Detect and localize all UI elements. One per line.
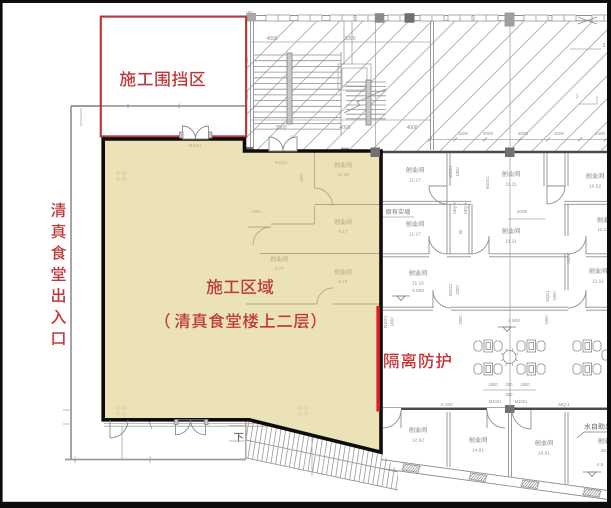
- svg-text:1800: 1800: [458, 315, 463, 325]
- svg-text:4.70: 4.70: [275, 266, 284, 271]
- svg-text:11.17: 11.17: [409, 232, 421, 238]
- svg-text:11.17: 11.17: [409, 178, 421, 184]
- svg-text:50: 50: [458, 229, 463, 234]
- svg-text:1800: 1800: [299, 173, 304, 183]
- svg-text:16.38: 16.38: [337, 172, 349, 177]
- svg-text:11.11: 11.11: [505, 239, 517, 245]
- svg-text:MQ-C: MQ-C: [566, 252, 571, 263]
- svg-text:1500: 1500: [251, 209, 261, 214]
- svg-text:1500: 1500: [458, 131, 469, 136]
- svg-text:2000: 2000: [483, 131, 494, 136]
- svg-text:16.61: 16.61: [538, 451, 550, 457]
- svg-text:3500: 3500: [275, 125, 286, 131]
- svg-text:14.81: 14.81: [472, 448, 484, 454]
- svg-text:2000: 2000: [517, 209, 528, 214]
- svg-text:M1021: M1021: [485, 176, 490, 189]
- svg-text:1: 1: [576, 94, 579, 100]
- svg-text:M1021: M1021: [515, 399, 528, 404]
- svg-text:MQ-5: MQ-5: [463, 202, 468, 214]
- svg-text:4.5: 4.5: [597, 462, 604, 468]
- svg-text:-0.150: -0.150: [439, 402, 452, 407]
- svg-text:12.92: 12.92: [412, 438, 424, 444]
- svg-text:1800: 1800: [455, 285, 460, 295]
- svg-text:3200: 3200: [344, 36, 355, 42]
- svg-text:1400: 1400: [595, 131, 606, 136]
- svg-text:4.500: 4.500: [412, 288, 424, 294]
- svg-text:11.11: 11.11: [505, 182, 517, 188]
- svg-text:1800: 1800: [552, 291, 557, 301]
- svg-text:1500: 1500: [554, 131, 565, 136]
- svg-text:4000: 4000: [266, 36, 277, 42]
- svg-text:4000: 4000: [339, 125, 350, 131]
- svg-text:250: 250: [506, 392, 514, 397]
- svg-text:1800: 1800: [455, 167, 460, 177]
- svg-text:150: 150: [246, 10, 254, 15]
- svg-text:M1021: M1021: [383, 315, 388, 328]
- svg-text:1800: 1800: [488, 382, 498, 387]
- svg-text:3: 3: [603, 43, 606, 49]
- svg-text:11.11: 11.11: [592, 279, 604, 285]
- svg-text:4000: 4000: [406, 125, 417, 131]
- svg-text:26.: 26.: [601, 448, 608, 454]
- svg-text:16.52: 16.52: [589, 184, 601, 190]
- svg-text:9.18: 9.18: [339, 279, 348, 284]
- svg-text:MQ-1: MQ-1: [558, 402, 570, 407]
- svg-text:11.16: 11.16: [412, 281, 424, 287]
- svg-text:1800: 1800: [520, 382, 530, 387]
- svg-text:4.500: 4.500: [508, 318, 520, 324]
- svg-text:M1021: M1021: [489, 399, 502, 404]
- svg-text:M1021: M1021: [448, 165, 453, 178]
- svg-text:MQ21: MQ21: [545, 290, 550, 302]
- svg-text:1800: 1800: [544, 315, 549, 325]
- svg-text:9.17: 9.17: [339, 229, 348, 234]
- svg-text:1800: 1800: [390, 317, 395, 327]
- svg-text:M1021: M1021: [189, 143, 202, 148]
- svg-text:2000: 2000: [518, 131, 529, 136]
- svg-text:M1021: M1021: [448, 283, 453, 296]
- svg-text:MQ-6: MQ-6: [452, 202, 457, 214]
- svg-text:250: 250: [506, 382, 514, 387]
- svg-text:M1021: M1021: [275, 160, 288, 165]
